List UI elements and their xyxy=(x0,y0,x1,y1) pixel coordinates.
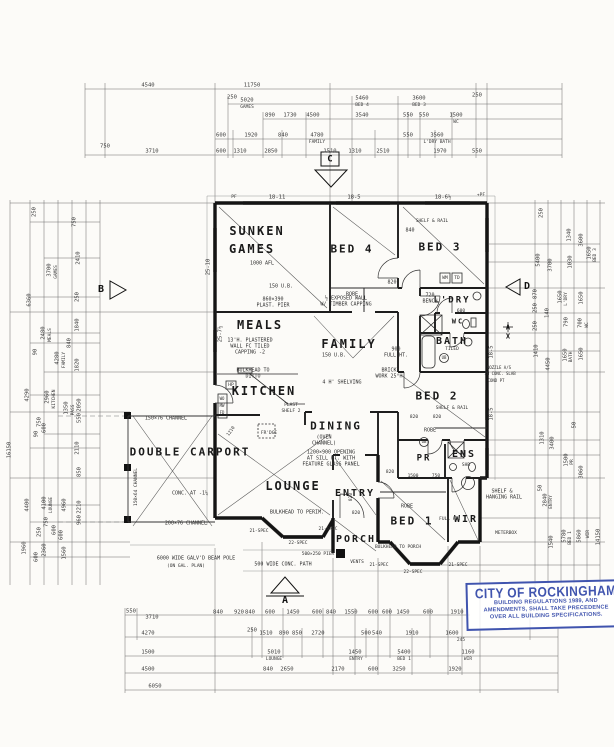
dimension-right: 1410 xyxy=(534,344,540,357)
dimension-left: LOUNGE xyxy=(50,497,55,513)
annotation: CONC. AT -1¼ xyxy=(172,492,208,497)
annotation: IN CONC. SLAB xyxy=(484,372,515,376)
dimension-left: 16150 xyxy=(7,442,13,459)
dimension-top: 1730 xyxy=(283,113,296,119)
council-approval-stamp: CITY OF ROCKINGHAM BUILDING REGULATIONS … xyxy=(465,579,614,631)
dimension-left: 250 xyxy=(37,527,43,537)
dimension-right: 1030 xyxy=(568,255,574,268)
dimension-left: FAMILY xyxy=(63,352,68,368)
wall-dimension: 18-5 xyxy=(489,407,495,420)
annotation: 820 xyxy=(352,512,360,517)
wall-dimension: 25-10 xyxy=(206,259,212,276)
section-marker-c: C xyxy=(327,156,332,165)
annotation: 150 U.B. xyxy=(322,354,346,359)
room-label-bed2: BED 2 xyxy=(415,391,458,402)
dimension-left: 4280 xyxy=(55,351,61,364)
dimension-top: 4780 xyxy=(310,133,323,139)
dimension-right: 700 xyxy=(578,318,584,328)
dimension-bottom: 2720 xyxy=(311,631,324,637)
dimension-left: 250 xyxy=(75,292,81,302)
wall-dimension: 18-6½ xyxy=(435,195,452,201)
wall-dimension: +PF xyxy=(477,194,485,199)
dimension-right: BED 1 xyxy=(569,531,574,545)
dimension-left: 2480 xyxy=(41,326,47,339)
dimension-bottom: 850 xyxy=(292,631,302,637)
dimension-bottom: 540 xyxy=(372,631,382,637)
dimension-right: BATH xyxy=(570,352,575,363)
section-marker-a: A xyxy=(282,596,288,606)
dimension-right: 3700 xyxy=(548,258,554,271)
annotation: PLAST. PIER xyxy=(256,304,289,309)
dimension-bottom: 5400 xyxy=(397,650,410,656)
dimension-bottom: WIR xyxy=(464,658,472,663)
dimension-right: BED 3 xyxy=(594,248,599,262)
annotation: NOZZLE A/S xyxy=(487,366,511,370)
dimension-left: 4960 xyxy=(62,498,68,511)
dimension-right: 870 xyxy=(533,289,539,299)
room-label-bed4: BED 4 xyxy=(330,244,373,255)
annotation: PLAST xyxy=(284,404,298,409)
annotation: 150×76 CHANNEL xyxy=(145,417,187,422)
annotation: UB xyxy=(442,356,447,360)
dimension-left: 840 xyxy=(67,338,73,348)
annotation: W/ TIMBER CAPPING xyxy=(320,303,371,308)
dimension-bottom: 1920 xyxy=(448,667,461,673)
annotation: SHELF & RAIL xyxy=(436,407,469,412)
dimension-bottom: 840 xyxy=(263,667,273,673)
dimension-left: 3700 xyxy=(47,263,53,276)
dimension-right: 3400 xyxy=(550,436,556,449)
room-label-laundry: L'DRY xyxy=(433,297,470,306)
dimension-bottom: 4500 xyxy=(141,667,154,673)
annotation: DITTO xyxy=(245,375,260,380)
dimension-top: 840 xyxy=(278,133,288,139)
annotation: FD xyxy=(220,411,225,415)
dimension-left: 1560 xyxy=(62,546,68,559)
dimension-top: FAMILY xyxy=(309,141,325,146)
dimension-bottom: 6050 xyxy=(148,684,161,690)
dimension-top: 3540 xyxy=(355,113,368,119)
dimension-top: 4500 xyxy=(306,113,319,119)
dimension-left: KITCHEN xyxy=(53,390,58,409)
annotation: 21-SPEC xyxy=(370,564,389,569)
dimension-top: 3600 xyxy=(412,96,425,102)
dimension-bottom: 1450 xyxy=(396,610,409,616)
section-marker-d: D xyxy=(524,282,530,292)
dimension-bottom: 600 xyxy=(423,610,433,616)
dimension-right: 140 xyxy=(545,308,551,318)
dimension-top: BED 3 xyxy=(412,104,426,109)
room-label-porch: PORCH xyxy=(336,535,376,545)
dimension-bottom: 5010 xyxy=(267,650,280,656)
dimension-left: 850 xyxy=(77,467,83,477)
dimension-bottom: 1450 xyxy=(286,610,299,616)
dimension-top: 1920 xyxy=(244,133,257,139)
room-label-wc: WC xyxy=(452,319,464,326)
dimension-left: 600 xyxy=(42,423,48,433)
dimension-bottom: 600 xyxy=(265,610,275,616)
dimension-left: 4100 xyxy=(42,496,48,509)
room-label-sunken-games-1: SUNKEN xyxy=(229,225,284,237)
dimension-right: 4450 xyxy=(546,357,552,370)
annotation: UB xyxy=(422,440,427,444)
room-label-family: FAMILY xyxy=(321,338,376,350)
dimension-right: 790 xyxy=(564,317,570,327)
annotation: 1000 AFL xyxy=(250,262,274,267)
wall-dimension: 18-5 xyxy=(347,195,360,201)
dimension-left: 2050 xyxy=(77,398,83,411)
annotation: 1210 xyxy=(227,426,237,437)
dimension-left: 750 xyxy=(72,217,78,227)
dimension-right: 1650 xyxy=(579,347,585,360)
dimension-top: 1310 xyxy=(233,149,246,155)
annotation: METERBOX xyxy=(495,532,517,537)
annotation: 840 xyxy=(405,229,414,234)
dimension-right: WIR xyxy=(587,530,592,538)
dimension-right: 50 xyxy=(538,485,544,492)
dimension-bottom: 4270 xyxy=(141,631,154,637)
annotation: VENTS xyxy=(350,561,364,566)
wall-dimension: PF xyxy=(231,196,236,201)
dimension-bottom: 600 xyxy=(312,610,322,616)
dimension-left: 90 xyxy=(34,431,40,438)
room-label-lounge: LOUNGE xyxy=(265,480,320,492)
dimension-bottom: ENTRY xyxy=(349,658,363,663)
annotation: 21-SPEC xyxy=(449,564,468,569)
dimension-left: 90 xyxy=(33,349,39,356)
dimension-bottom: 2650 xyxy=(280,667,293,673)
dimension-right: 5860 xyxy=(577,529,583,542)
scanned-floor-plan-page: SUNKENGAMESBED 4BED 3L'DRYWCBATHMEALSFAM… xyxy=(0,0,614,747)
wall-dimension: 18-11 xyxy=(269,195,286,201)
annotation: BULKHEAD TO PORCH xyxy=(375,546,421,551)
dimension-bottom: 1600 xyxy=(445,631,458,637)
dimension-top: 250 xyxy=(227,95,237,101)
room-label-bed3: BED 3 xyxy=(418,242,461,253)
dimension-left: 1350 xyxy=(64,401,70,414)
dimension-left: 4400 xyxy=(25,498,31,511)
annotation: COND PT xyxy=(488,379,505,383)
dimension-bottom: 1500 xyxy=(141,650,154,656)
dimension-left: 960 xyxy=(77,515,83,525)
room-label-kitchen: KITCHEN xyxy=(232,385,297,397)
dimension-bottom: 1910 xyxy=(450,610,463,616)
dimension-right: 1650 xyxy=(579,291,585,304)
annotation: MW xyxy=(220,404,225,408)
dimension-right: 1540 xyxy=(549,535,555,548)
dimension-left: MEALS xyxy=(49,328,54,342)
annotation: FULL HT. xyxy=(384,354,408,359)
dimension-top: 550 xyxy=(403,133,413,139)
dimension-bottom: 1510 xyxy=(259,631,272,637)
dimension-top: 250 xyxy=(472,93,482,99)
dimension-top: 550 xyxy=(472,149,482,155)
dimension-top: BED 4 xyxy=(355,104,369,109)
room-label-dining: DINING xyxy=(310,421,362,432)
dimension-top: 550 xyxy=(403,113,413,119)
annotation: SHR xyxy=(462,464,470,469)
dimension-bottom: 1160 xyxy=(461,650,474,656)
annotation: 150 U.B. xyxy=(269,285,293,290)
dimension-top: 1500 xyxy=(449,113,462,119)
dimension-bottom: 890 xyxy=(279,631,289,637)
dimension-top: 2850 xyxy=(264,149,277,155)
dimension-right: 3060 xyxy=(579,465,585,478)
dimension-top: 5460 xyxy=(355,96,368,102)
dimension-top: 890 xyxy=(265,113,275,119)
dimension-left: GAMES xyxy=(55,265,60,279)
dimension-bottom: 840 xyxy=(213,610,223,616)
annotation: 4 H' SHELVING xyxy=(322,381,361,386)
annotation: 150×64 CHANNEL xyxy=(135,468,140,506)
dimension-top: 5020 xyxy=(240,98,253,104)
annotation: ROBE xyxy=(424,429,436,434)
annotation: 820 xyxy=(410,416,418,421)
dimension-left: 600 xyxy=(59,530,65,540)
dimension-bottom: 920 xyxy=(234,610,244,616)
dimension-left: 2110 xyxy=(75,441,81,454)
annotation: (ON GAL. PLAN) xyxy=(167,565,205,570)
dimension-left: 4290 xyxy=(25,388,31,401)
annotation: BENCH xyxy=(422,300,437,305)
annotation: FULL HT. xyxy=(439,518,461,523)
annotation: 820 xyxy=(386,471,394,476)
annotation: 6000 WIDE GALV'D BEAM POLE xyxy=(157,557,235,562)
annotation: 820 xyxy=(387,281,396,286)
dimension-right: 1310 xyxy=(540,431,546,444)
dimension-left: 600 xyxy=(52,525,58,535)
dimension-left: 6360 xyxy=(27,293,33,306)
annotation: SHELF & RAIL xyxy=(416,220,449,225)
dimension-top: 2510 xyxy=(376,149,389,155)
dimension-top: 600 xyxy=(216,133,226,139)
annotation: 1500 xyxy=(408,475,419,480)
room-label-sunken-games-2: GAMES xyxy=(229,243,275,255)
annotation: WORK 25°H xyxy=(375,375,402,380)
dimension-top: 1970 xyxy=(433,149,446,155)
room-label-double-carport: DOUBLE CARPORT xyxy=(130,447,251,458)
dimension-right: 250 xyxy=(539,208,545,218)
dimension-bottom: 3250 xyxy=(392,667,405,673)
label-layer: SUNKENGAMESBED 4BED 3L'DRYWCBATHMEALSFAM… xyxy=(0,0,614,747)
dimension-bottom: 3710 xyxy=(145,615,158,621)
dimension-top: L'DRY BATH xyxy=(423,141,450,146)
annotation: WO xyxy=(220,397,225,401)
section-marker-ax-x: X xyxy=(506,334,510,341)
annotation: HANGING RAIL xyxy=(486,496,522,501)
section-marker-b: B xyxy=(98,285,104,295)
dimension-right: 3600 xyxy=(579,233,585,246)
dimension-left: 250 xyxy=(32,207,38,217)
dimension-left: 1960 xyxy=(22,541,28,554)
room-label-meals: MEALS xyxy=(237,319,283,331)
wall-dimension: 25-7½ xyxy=(218,326,224,343)
dimension-bottom: 550 xyxy=(126,609,136,615)
dimension-bottom: BED 1 xyxy=(397,658,411,663)
dimension-right: L'DRY xyxy=(565,292,570,306)
dimension-top: 1310 xyxy=(348,149,361,155)
dimension-top: 750 xyxy=(100,144,110,150)
dimension-bottom: 600 xyxy=(368,610,378,616)
annotation: ROBE xyxy=(401,505,413,510)
dimension-left: 1840 xyxy=(75,318,81,331)
wall-dimension: 18-5 xyxy=(489,345,495,358)
dimension-right: 5400 xyxy=(536,253,542,266)
annotation: WM xyxy=(442,277,447,282)
dimension-bottom: 1910 xyxy=(405,631,418,637)
annotation: TILED xyxy=(445,348,459,353)
annotation: 820 xyxy=(350,493,355,501)
annotation: 600 xyxy=(457,310,465,315)
dimension-bottom: 500 xyxy=(361,631,371,637)
annotation: CHANNEL) xyxy=(312,442,336,447)
annotation: SHELF 2 xyxy=(282,410,301,415)
annotation: 22-SPEC xyxy=(289,542,308,547)
dimension-bottom: LOUNGE xyxy=(266,658,282,663)
dimension-bottom: 600 xyxy=(368,667,378,673)
dimension-right: 250 xyxy=(533,321,539,331)
dimension-top: 600 xyxy=(216,149,226,155)
dimension-right: PR xyxy=(571,459,576,464)
room-label-ens: ENS xyxy=(452,450,476,460)
room-label-entry: ENTRY xyxy=(335,489,375,499)
annotation: 21-SPEC xyxy=(250,530,269,535)
annotation: HP xyxy=(228,384,233,389)
dimension-right: WC xyxy=(586,322,591,327)
dimension-left: 750 xyxy=(44,517,50,527)
dimension-bottom: 840 xyxy=(326,610,336,616)
annotation: TD xyxy=(454,277,459,282)
annotation: CAPPING -2 xyxy=(235,351,265,356)
dimension-right: 250 xyxy=(533,303,539,313)
room-label-bed1: BED 1 xyxy=(390,516,433,527)
dimension-left: 550 xyxy=(77,413,83,423)
annotation: 820 xyxy=(433,416,441,421)
dimension-top: 3560 xyxy=(430,133,443,139)
dimension-top: 4540 xyxy=(141,83,154,89)
annotation: 500 WIDE CONC. PATH xyxy=(254,563,311,568)
dimension-bottom: 245 xyxy=(457,639,465,644)
annotation: FEATURE GLASS PANEL xyxy=(302,463,359,468)
dimension-bottom: 1450 xyxy=(348,650,361,656)
dimension-left: 2360 xyxy=(42,543,48,556)
dimension-bottom: 1550 xyxy=(344,610,357,616)
dimension-bottom: 840 xyxy=(245,610,255,616)
dimension-bottom: 250 xyxy=(247,628,257,634)
dimension-right: ENTRY xyxy=(550,495,555,509)
dimension-left: 2960 xyxy=(45,390,51,403)
dimension-left: 1820 xyxy=(75,358,81,371)
dimension-top: GAMES xyxy=(240,106,254,111)
annotation: 500×250 PIER xyxy=(302,553,335,558)
room-label-bath: BATH xyxy=(436,337,468,347)
dimension-left: 2410 xyxy=(76,251,82,264)
dimension-top: 550 xyxy=(419,113,429,119)
dimension-bottom: 2170 xyxy=(331,667,344,673)
annotation: BULKHEAD TO PERIM. xyxy=(270,511,324,516)
annotation: 750 xyxy=(432,475,440,480)
annotation: 21-SPEC xyxy=(319,528,338,533)
section-marker-ax-a: A xyxy=(506,325,510,332)
dimension-top: 3710 xyxy=(145,149,158,155)
dimension-right: 14150 xyxy=(596,529,602,546)
dimension-top: WC xyxy=(453,121,458,126)
dimension-top: 11750 xyxy=(244,83,261,89)
annotation: 200×76 CHANNEL xyxy=(165,522,207,527)
annotation: ROBE xyxy=(346,293,358,298)
annotation: FR'DGE xyxy=(261,432,277,437)
dimension-left: 2210 xyxy=(77,500,83,513)
stamp-title: CITY OF ROCKINGHAM xyxy=(471,582,614,602)
annotation: 22-SPEC xyxy=(404,571,423,576)
dimension-right: 1340 xyxy=(567,228,573,241)
dimension-left: 600 xyxy=(34,552,40,562)
dimension-top: 1510 xyxy=(323,149,336,155)
dimension-right: 50 xyxy=(572,422,578,429)
room-label-pr: PR xyxy=(417,455,432,464)
dimension-bottom: 600 xyxy=(382,610,392,616)
